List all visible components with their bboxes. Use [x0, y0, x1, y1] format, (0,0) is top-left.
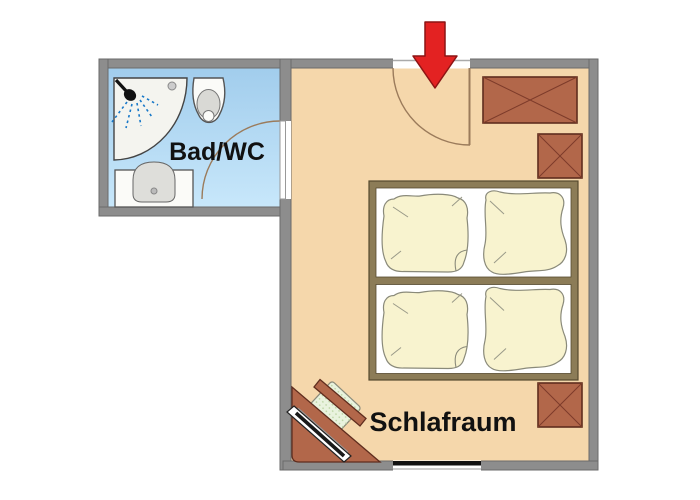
wall-bath-bottom	[99, 207, 291, 216]
bathroom-label: Bad/WC	[169, 138, 265, 166]
wall-right	[589, 59, 598, 470]
wardrobe-small-top	[538, 134, 582, 178]
sink-drain	[151, 188, 157, 194]
wall-bath-left	[99, 59, 108, 216]
toilet-drain	[203, 111, 214, 122]
wall-top	[99, 59, 598, 68]
floor-plan-canvas: Bad/WC Schlafraum	[0, 0, 700, 500]
sink-basin	[133, 162, 175, 202]
shower-drain	[168, 82, 176, 90]
wardrobe-small-bottom	[538, 383, 582, 427]
double-bed	[369, 181, 578, 380]
bedroom-label: Schlafraum	[369, 407, 516, 437]
bathroom-door-leaf	[280, 121, 286, 199]
window	[393, 461, 481, 466]
floor-plan: Bad/WC Schlafraum	[0, 0, 700, 500]
wardrobe-large	[483, 77, 577, 123]
pillow	[484, 191, 567, 274]
